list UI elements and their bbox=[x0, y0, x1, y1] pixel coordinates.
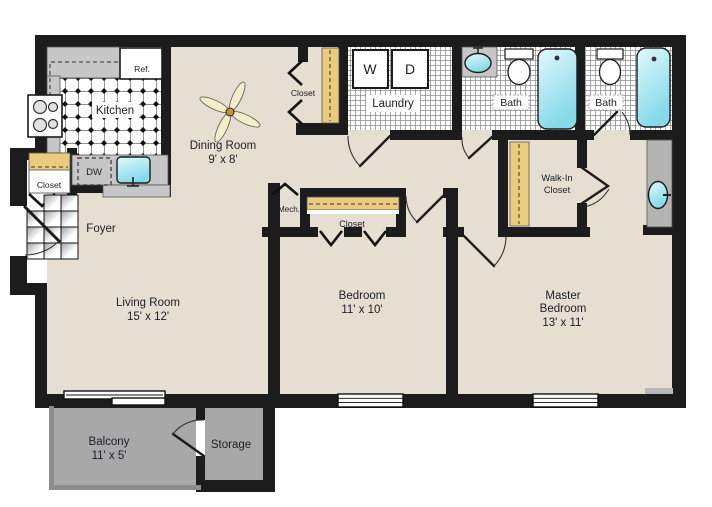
room-label-mech: Mech. bbox=[278, 205, 300, 214]
room-label-storage: Storage bbox=[211, 439, 251, 451]
foyer-closet-shelf bbox=[29, 153, 70, 170]
room-label-master-2: Bedroom bbox=[540, 303, 587, 315]
bath2-bathtub-icon bbox=[637, 48, 670, 127]
dryer-label: D bbox=[405, 61, 415, 77]
master-window bbox=[533, 394, 598, 407]
entry-door-opening bbox=[8, 206, 29, 256]
room-dims-dining: 9' x 8' bbox=[208, 154, 237, 166]
dishwasher-label: DW bbox=[86, 167, 102, 178]
room-label-master-1: Master bbox=[545, 290, 580, 302]
stove-icon bbox=[28, 95, 62, 137]
room-dims-living: 15' x 12' bbox=[127, 311, 169, 323]
bedroom-window bbox=[338, 394, 403, 407]
room-label-dining: Dining Room bbox=[190, 140, 256, 152]
floor-plan-drawing: Ref. DW Kitchen Closet bbox=[0, 0, 712, 507]
room-label-bedroom: Bedroom bbox=[339, 290, 386, 302]
floor-plan-page: Ref. DW Kitchen Closet bbox=[0, 0, 712, 507]
bedroom-closet-shelf-edge bbox=[307, 210, 399, 214]
bath2-toilet-icon bbox=[597, 49, 623, 85]
refrigerator-label: Ref. bbox=[134, 64, 150, 74]
room-label-walkin-1: Walk-In bbox=[541, 173, 572, 183]
room-label-walkin-2: Closet bbox=[544, 185, 571, 195]
room-label-laundry: Laundry bbox=[372, 98, 414, 110]
master-vanity bbox=[647, 140, 672, 227]
kitchen-sink-icon bbox=[117, 157, 150, 186]
room-label-bath2: Bath bbox=[595, 97, 617, 109]
washer-label: W bbox=[363, 61, 377, 77]
room-label-bath1: Bath bbox=[500, 97, 522, 109]
room-dims-balcony: 11' x 5' bbox=[92, 450, 127, 462]
closet-label-dining: Closet bbox=[291, 88, 316, 98]
room-label-foyer: Foyer bbox=[86, 223, 116, 235]
closet-label-bedroom: Closet bbox=[339, 219, 365, 229]
room-label-kitchen: Kitchen bbox=[96, 105, 134, 117]
room-dims-master: 13' x 11' bbox=[542, 317, 583, 329]
bath1-bathtub-icon bbox=[538, 49, 577, 129]
baseboard-unit bbox=[645, 388, 673, 394]
room-label-balcony: Balcony bbox=[89, 436, 130, 448]
room-dims-bedroom: 11' x 10' bbox=[341, 304, 382, 316]
stairs-icon bbox=[27, 195, 78, 259]
closet-label-foyer: Closet bbox=[37, 180, 62, 190]
room-label-living: Living Room bbox=[116, 297, 180, 309]
